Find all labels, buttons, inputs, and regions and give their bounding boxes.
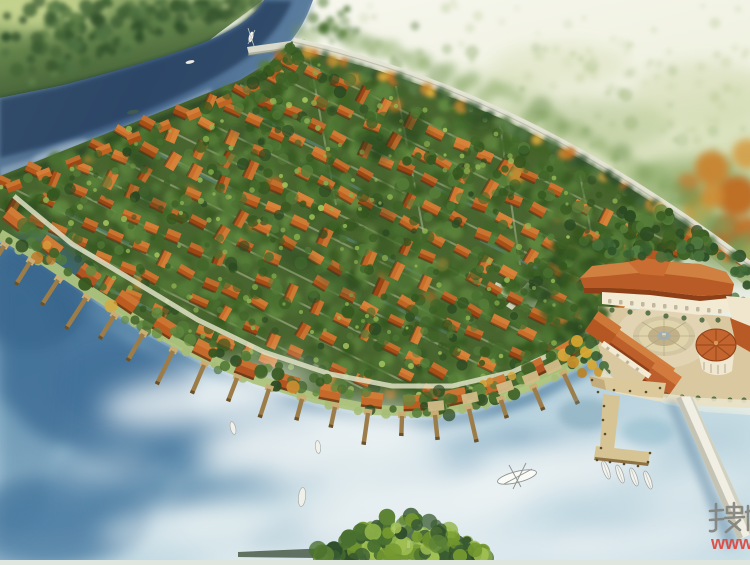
svg-text:www.f: www.f (710, 533, 750, 553)
